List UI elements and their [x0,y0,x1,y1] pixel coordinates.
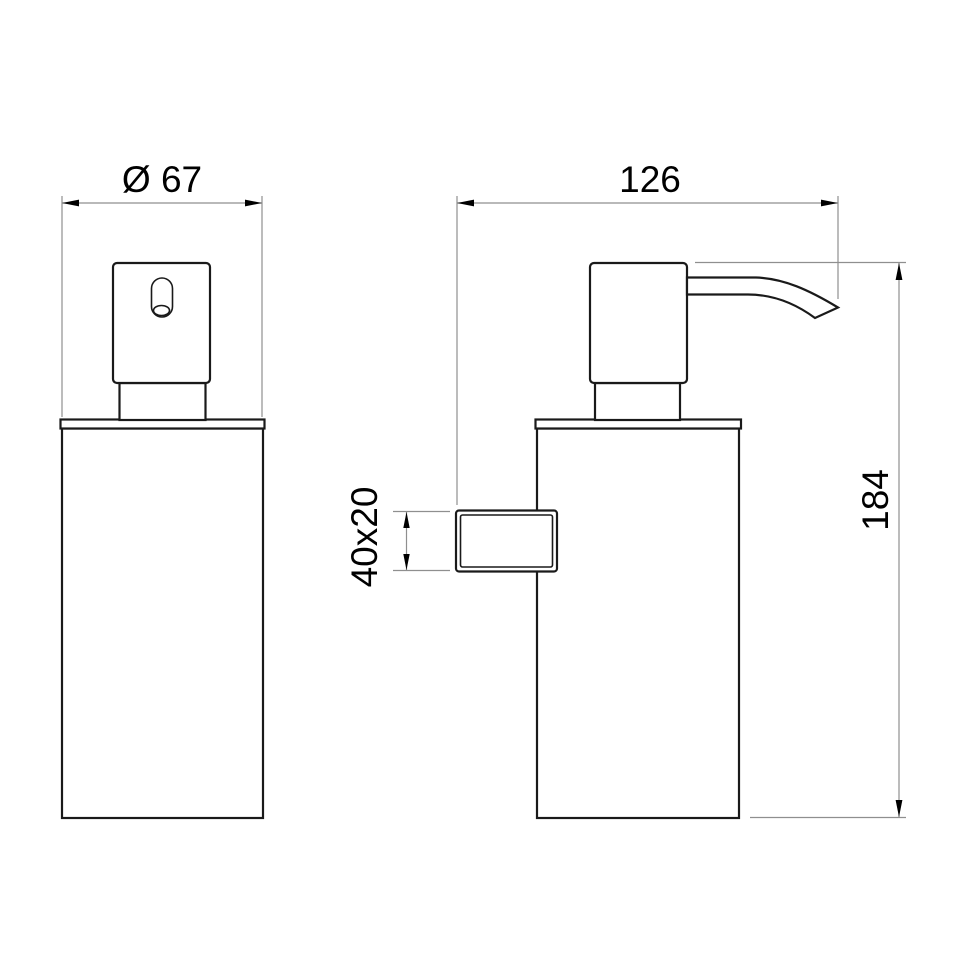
side-body [537,429,739,819]
wall-bracket-inner [461,515,553,567]
arrow-bottom [403,554,409,570]
arrow-right [821,200,838,207]
front-nozzle-opening [154,306,170,316]
technical-drawing-page: Ø 67 [0,0,970,970]
front-body [62,429,263,819]
arrow-bottom [896,800,903,817]
arrow-right [245,200,262,207]
soap-dispenser-dimension-drawing: Ø 67 [0,0,970,970]
side-spout [687,278,838,319]
front-pump-neck [120,383,206,420]
wall-bracket [456,511,557,572]
arrow-top [896,263,903,280]
side-pump-head [590,263,687,383]
diameter-label: Ø 67 [122,159,202,200]
depth-label: 126 [619,159,681,200]
height-label: 184 [855,469,896,531]
bracket-label: 40x20 [344,487,385,588]
arrow-left [62,200,79,207]
arrow-top [403,512,409,528]
bracket-dimension: 40x20 [344,487,450,588]
arrow-left [457,200,474,207]
side-pump-neck [595,383,680,420]
side-view: 126 184 40x20 [344,159,906,818]
front-view: Ø 67 [61,159,265,818]
